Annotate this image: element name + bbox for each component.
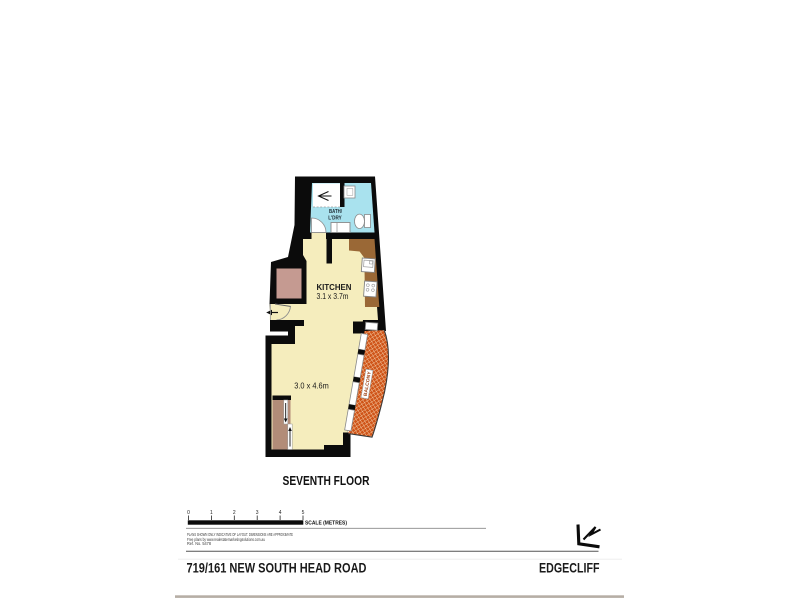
svg-text:Ref. No. 5478: Ref. No. 5478 bbox=[187, 541, 212, 546]
svg-text:KITCHEN: KITCHEN bbox=[317, 282, 352, 292]
svg-text:EDGECLIFF: EDGECLIFF bbox=[539, 561, 600, 576]
svg-text:1: 1 bbox=[210, 510, 213, 516]
svg-text:2: 2 bbox=[233, 510, 236, 516]
svg-text:L'DRY: L'DRY bbox=[328, 216, 342, 222]
svg-text:SCALE (METRES): SCALE (METRES) bbox=[305, 521, 347, 527]
svg-text:5: 5 bbox=[302, 510, 305, 516]
svg-text:BATH/: BATH/ bbox=[329, 209, 342, 215]
svg-text:0: 0 bbox=[187, 510, 190, 516]
svg-text:719/161 NEW SOUTH HEAD ROAD: 719/161 NEW SOUTH HEAD ROAD bbox=[187, 561, 367, 576]
svg-text:4: 4 bbox=[279, 510, 282, 516]
svg-text:3: 3 bbox=[256, 510, 259, 516]
svg-text:3.1 x 3.7m: 3.1 x 3.7m bbox=[317, 292, 349, 301]
svg-text:3.0 x 4.6m: 3.0 x 4.6m bbox=[294, 381, 329, 391]
svg-text:SEVENTH FLOOR: SEVENTH FLOOR bbox=[283, 473, 370, 488]
